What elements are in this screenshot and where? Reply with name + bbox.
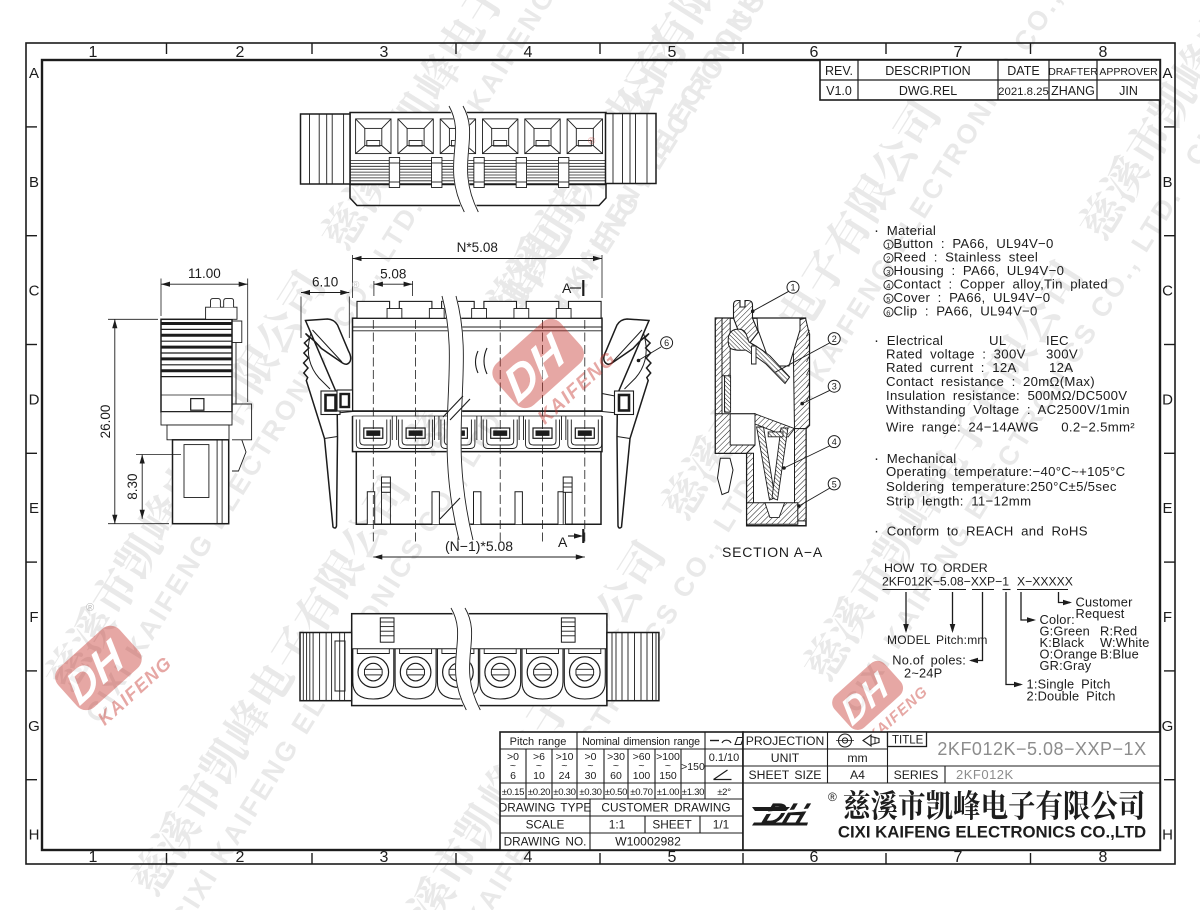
svg-text:MODEL: MODEL (887, 633, 931, 647)
svg-text:B: B (1162, 174, 1172, 191)
svg-text:V1.0: V1.0 (826, 84, 852, 98)
svg-text:0.1/10: 0.1/10 (709, 752, 740, 764)
svg-text:3: 3 (832, 382, 837, 392)
svg-text:24: 24 (559, 770, 571, 782)
svg-text:Withstanding Voltage : AC2500V: Withstanding Voltage : AC2500V/1min (886, 402, 1130, 417)
svg-text:A: A (558, 534, 568, 550)
svg-text:150: 150 (659, 770, 677, 782)
svg-text:W10002982: W10002982 (615, 835, 681, 849)
svg-text:±1.00: ±1.00 (657, 787, 679, 798)
svg-text:7: 7 (954, 44, 963, 61)
svg-text:Wire range: 24−14AWG 0.2−2.5: Wire range: 24−14AWG 0.2−2.5mm² (886, 420, 1135, 435)
svg-text:30: 30 (585, 770, 597, 782)
svg-text:±0.50: ±0.50 (605, 787, 627, 798)
svg-text:Pitch:mm: Pitch:mm (936, 633, 988, 647)
svg-text:4: 4 (832, 437, 837, 447)
svg-text:100: 100 (633, 770, 651, 782)
svg-text:DWG.REL: DWG.REL (899, 84, 957, 98)
svg-text:±2°: ±2° (717, 787, 731, 798)
svg-text:5: 5 (668, 849, 677, 866)
svg-text:DESCRIPTION: DESCRIPTION (885, 64, 970, 78)
svg-text:Operating temperature:−40°C~+1: Operating temperature:−40°C~+105°C (886, 464, 1126, 479)
svg-text:5.08: 5.08 (380, 266, 406, 281)
svg-text:SERIES: SERIES (894, 768, 939, 782)
svg-text:D: D (29, 392, 40, 409)
svg-text:Strip length: 11−12mm: Strip length: 11−12mm (886, 494, 1031, 509)
svg-text:(N−1)*5.08: (N−1)*5.08 (445, 538, 513, 554)
svg-text:D: D (1162, 392, 1173, 409)
svg-text:B:Blue: B:Blue (1100, 647, 1139, 662)
svg-text:F: F (29, 609, 38, 626)
svg-text:±0.30: ±0.30 (553, 787, 575, 798)
svg-text:6: 6 (810, 44, 819, 61)
svg-text:2: 2 (236, 849, 245, 866)
svg-text:Clip : PA66, UL94V−0: Clip : PA66, UL94V−0 (894, 304, 1038, 319)
svg-text:60: 60 (610, 770, 622, 782)
svg-text:SHEET: SHEET (652, 818, 691, 832)
svg-text:6: 6 (886, 308, 890, 317)
svg-text:2~24P: 2~24P (904, 666, 942, 681)
svg-text:Pitch range: Pitch range (510, 736, 567, 748)
svg-text:8: 8 (1099, 44, 1108, 61)
svg-text:HOW TO ORDER: HOW TO ORDER (884, 561, 988, 575)
svg-text:CIXI KAIFENG ELECTRONICS CO.,L: CIXI KAIFENG ELECTRONICS CO.,LTD (838, 823, 1146, 842)
svg-text:1: 1 (89, 849, 98, 866)
svg-text:2KF012K: 2KF012K (956, 767, 1014, 782)
svg-text:SHEET SIZE: SHEET SIZE (749, 768, 822, 782)
svg-text:±0.20: ±0.20 (528, 787, 550, 798)
svg-text:±1.30: ±1.30 (682, 787, 704, 798)
svg-text:DRAWING TYPE: DRAWING TYPE (499, 801, 592, 815)
svg-text:Soldering temperature:250°C±5/: Soldering temperature:250°C±5/5sec (886, 479, 1117, 494)
svg-text:6: 6 (664, 338, 669, 348)
svg-text:Rated current : 12A: Rated current : 12A (886, 360, 1017, 375)
svg-text:F: F (1163, 609, 1172, 626)
svg-text:®: ® (588, 136, 596, 147)
svg-text:5: 5 (832, 479, 837, 489)
svg-text:2021.8.25: 2021.8.25 (998, 86, 1049, 98)
svg-text:®: ® (828, 790, 837, 804)
svg-text:3: 3 (380, 849, 389, 866)
svg-text:>150: >150 (681, 761, 705, 773)
svg-text:5: 5 (668, 44, 677, 61)
svg-text:SECTION A−A: SECTION A−A (722, 544, 823, 560)
svg-text:3: 3 (380, 44, 389, 61)
svg-text:A: A (1162, 65, 1172, 82)
svg-text:JIN: JIN (1119, 84, 1138, 98)
svg-text:G: G (1162, 718, 1174, 735)
svg-text:6.10: 6.10 (312, 275, 338, 290)
svg-text:4: 4 (524, 849, 533, 866)
svg-text:G: G (28, 718, 40, 735)
svg-text:®: ® (352, 280, 360, 291)
svg-text:2KF012K−5.08−XXP−1: 2KF012K−5.08−XXP−1 (882, 575, 1009, 589)
svg-text:B: B (29, 174, 39, 191)
svg-text:X−XXXXX: X−XXXXX (1017, 575, 1073, 589)
svg-text:E: E (1162, 500, 1172, 517)
svg-text:DRAWING NO.: DRAWING NO. (504, 835, 587, 849)
svg-text:APPROVER: APPROVER (1099, 66, 1158, 78)
svg-text:2:Double Pitch: 2:Double Pitch (1027, 689, 1116, 704)
svg-text:5: 5 (886, 295, 890, 304)
svg-text:2KF012K−5.08−XXP−1X: 2KF012K−5.08−XXP−1X (937, 739, 1146, 759)
svg-text:7: 7 (954, 849, 963, 866)
svg-text:8: 8 (1099, 849, 1108, 866)
svg-text:A: A (29, 65, 39, 82)
svg-text:PROJECTION: PROJECTION (746, 734, 825, 748)
svg-text:Insulation resistance: 500MΩ/D: Insulation resistance: 500MΩ/DC500V (886, 388, 1127, 403)
svg-text:A4: A4 (850, 768, 865, 782)
svg-text:1/1: 1/1 (713, 818, 729, 832)
svg-text:Request: Request (1076, 606, 1125, 621)
svg-text:C: C (1162, 283, 1173, 300)
svg-text:11.00: 11.00 (188, 266, 221, 281)
svg-text:DATE: DATE (1007, 64, 1039, 78)
svg-text:E: E (29, 500, 39, 517)
svg-text:8.30: 8.30 (125, 474, 140, 500)
svg-text:H: H (29, 827, 40, 844)
svg-text:6: 6 (810, 849, 819, 866)
svg-text:10: 10 (533, 770, 545, 782)
svg-text:26.00: 26.00 (98, 405, 113, 439)
svg-text:GR:Gray: GR:Gray (1040, 658, 1092, 673)
svg-text:12A: 12A (1049, 360, 1073, 375)
svg-text:H: H (1162, 827, 1173, 844)
svg-text:3: 3 (886, 268, 890, 277)
svg-text:UNIT: UNIT (771, 751, 800, 765)
svg-text:1: 1 (886, 241, 890, 250)
svg-text:±0.30: ±0.30 (579, 787, 601, 798)
svg-text:Nominal dimension range: Nominal dimension range (582, 736, 700, 748)
svg-text:2: 2 (886, 254, 890, 263)
svg-text:SCALE: SCALE (526, 818, 565, 832)
svg-text:DRAFTER: DRAFTER (1048, 66, 1098, 78)
svg-text:Contact resistance : 20mΩ(Max): Contact resistance : 20mΩ(Max) (886, 374, 1095, 389)
svg-text:6: 6 (510, 770, 516, 782)
svg-text:TITLE: TITLE (892, 735, 924, 747)
svg-text:2: 2 (832, 334, 837, 344)
svg-text:ZHANG: ZHANG (1051, 84, 1095, 98)
svg-text:C: C (29, 283, 40, 300)
svg-text:4: 4 (886, 281, 890, 290)
svg-text:±0.15: ±0.15 (502, 787, 524, 798)
svg-text:mm: mm (847, 751, 867, 765)
svg-text:CUSTOMER DRAWING: CUSTOMER DRAWING (601, 801, 730, 815)
svg-text:2: 2 (236, 44, 245, 61)
svg-text:1: 1 (790, 283, 795, 293)
svg-text:N*5.08: N*5.08 (457, 240, 498, 255)
svg-text:REV.: REV. (825, 64, 853, 78)
svg-text:· Conform to REACH and RoHS: · Conform to REACH and RoHS (874, 523, 1088, 540)
svg-text:1:1: 1:1 (609, 818, 625, 832)
svg-text:®: ® (86, 602, 94, 614)
svg-text:4: 4 (524, 44, 533, 61)
svg-text:1: 1 (89, 44, 98, 61)
svg-text:±0.70: ±0.70 (630, 787, 652, 798)
